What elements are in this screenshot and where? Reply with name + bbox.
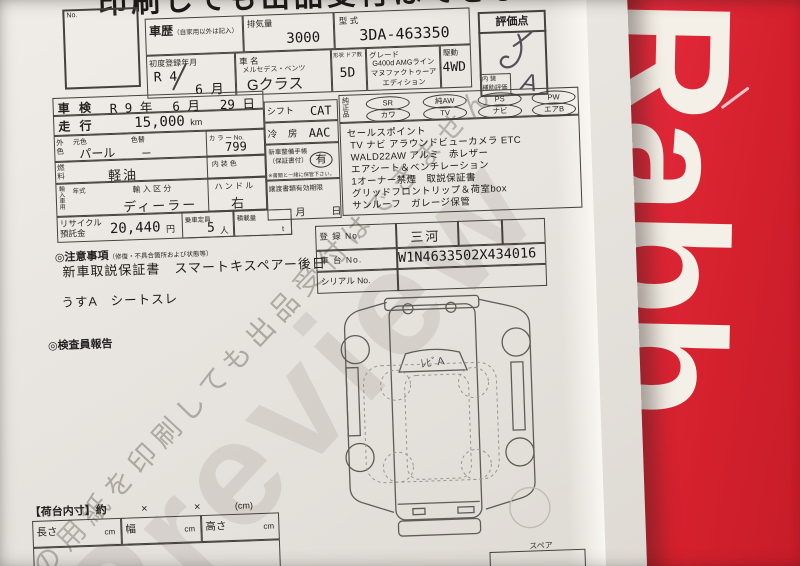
wheel-plan-rl bbox=[383, 452, 414, 483]
wheel-plan-fr bbox=[458, 367, 489, 398]
cargo-unit: (cm) bbox=[235, 500, 253, 511]
load-unit: t bbox=[282, 224, 284, 233]
rating-score-mark bbox=[487, 28, 541, 74]
handle-value: 右 bbox=[231, 192, 245, 211]
cargo-height-unit: cm bbox=[263, 522, 274, 531]
left-rear-wheel bbox=[346, 443, 375, 472]
drive-value: 4WD bbox=[442, 60, 466, 76]
roof-rack-bar bbox=[385, 295, 479, 310]
cargo-length-unit: cm bbox=[104, 527, 115, 536]
notes-line2: うすA シートスレ bbox=[61, 288, 178, 311]
registration-label: 登 録 No. bbox=[319, 229, 361, 242]
handle-label: ハ ン ド ル bbox=[214, 180, 253, 192]
auction-form: Preview この用紙を印刷しても出品受付はできません 印刷しても出品受付はで… bbox=[0, 0, 636, 566]
import-side-label: 輸入車用 bbox=[57, 186, 64, 210]
color-side-label: 外色 bbox=[56, 139, 64, 156]
cargo-width-label: 幅 bbox=[125, 521, 136, 536]
right-sill bbox=[511, 362, 525, 430]
recycle-label: リサイクル預託金 bbox=[60, 217, 107, 239]
auction-sheet-photo: { "colors": {"band_red": "#d4202d", "pap… bbox=[0, 0, 800, 566]
right-front-wheel bbox=[502, 328, 531, 357]
taillight-right bbox=[458, 507, 474, 514]
no-box bbox=[62, 7, 141, 90]
cargo-height-label: 高さ bbox=[205, 518, 227, 534]
wheel-plan-rr bbox=[461, 449, 492, 480]
inspector-report-title: ◎検査員報告 bbox=[48, 335, 113, 353]
load-label: 積載量 bbox=[236, 212, 256, 223]
wheel-plan-fl bbox=[380, 370, 411, 401]
drive-label: 駆動 bbox=[443, 47, 458, 59]
mileage-label: 走 行 bbox=[58, 117, 95, 135]
bottom-right-partial-box bbox=[489, 549, 586, 566]
taillight-left bbox=[413, 508, 425, 514]
cargo-length-label: 長さ bbox=[36, 524, 58, 540]
displacement-value: 3000 bbox=[286, 30, 320, 47]
first-registration-label: 初度登録年月 bbox=[149, 57, 197, 70]
chassis-label: 車 台 No. bbox=[320, 253, 362, 266]
transfer-docs-label: 譲渡書類有効期限 bbox=[268, 182, 323, 194]
left-sill bbox=[346, 368, 360, 436]
cargo-x1: × bbox=[141, 503, 148, 515]
color-no-value: 799 bbox=[225, 139, 247, 154]
auction-sheet-paper: Preview この用紙を印刷しても出品受付はできません 印刷しても出品受付はで… bbox=[0, 0, 649, 566]
grade-value: G400d AMGライン マヌファクトゥーアエディション bbox=[369, 57, 438, 89]
serial-label: シリアル No. bbox=[321, 274, 371, 288]
model-code-value: 3DA-463350 bbox=[359, 23, 450, 44]
import-kubun-label: 輸 入 区 分 bbox=[132, 183, 171, 195]
shape-label: 形状 ドア数 bbox=[333, 50, 362, 59]
mileage-unit: km bbox=[190, 117, 202, 127]
displacement-label: 排気量 bbox=[247, 17, 273, 30]
roof-dashed bbox=[404, 374, 472, 480]
circled-value: 有 bbox=[309, 151, 333, 168]
year-type-label: 年式 bbox=[72, 185, 85, 195]
shift-label: シフト bbox=[267, 104, 294, 118]
windshield-handwritten-mark: ﾚﾋﾞA bbox=[420, 354, 446, 370]
aircon-value: AAC bbox=[308, 125, 330, 140]
warranty-book-value: 有 bbox=[309, 149, 333, 168]
fuel-side-label: 燃料 bbox=[57, 164, 65, 181]
aircon-label: 冷 房 bbox=[267, 125, 301, 140]
right-side-panel bbox=[479, 298, 536, 510]
rear-line bbox=[398, 501, 480, 504]
equipment-side-label: 純正品 bbox=[341, 97, 349, 118]
rear-bumper bbox=[398, 518, 480, 536]
shape-value: 5D bbox=[339, 65, 355, 81]
first-registration-era: R 4 bbox=[153, 70, 177, 86]
capacity-value: 5 bbox=[207, 220, 215, 235]
transfer-day: 日 bbox=[331, 202, 342, 217]
vehicle-damage-diagram: ﾚﾋﾞA bbox=[330, 286, 589, 553]
shift-value: CAT bbox=[310, 103, 332, 118]
recycle-unit: 円 bbox=[166, 222, 175, 235]
left-side-panel bbox=[344, 302, 394, 513]
recycle-value: 20,440 bbox=[110, 219, 161, 237]
right-rear-wheel bbox=[505, 437, 534, 466]
cargo-width-unit: cm bbox=[184, 524, 195, 533]
repaint-label: 色替 bbox=[131, 135, 145, 145]
interior-color-label: 内 装 色 bbox=[212, 159, 237, 170]
history-label: 車歴（自家用以外は記入） bbox=[149, 20, 239, 41]
transfer-month: 月 bbox=[295, 203, 306, 218]
warranty-book-label: 新車整備手帳（保証書付） bbox=[268, 147, 311, 167]
model-code-label: 型 式 bbox=[339, 14, 359, 27]
capacity-unit: 人 bbox=[220, 224, 229, 236]
cargo-x2: × bbox=[194, 501, 201, 513]
car-body-outline bbox=[389, 303, 482, 520]
registration-value: 三河 bbox=[410, 226, 441, 246]
no-box-label: No. bbox=[66, 12, 77, 19]
mileage-value: 15,000 bbox=[134, 113, 185, 131]
